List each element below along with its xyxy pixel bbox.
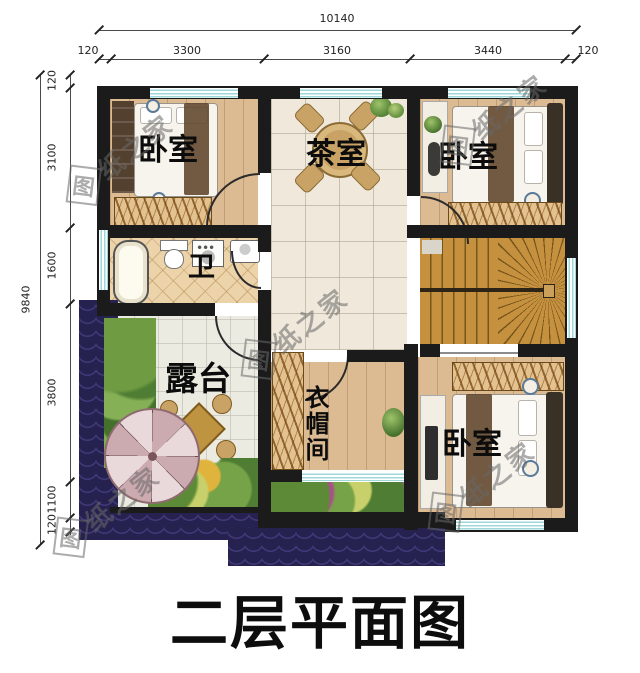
window bbox=[302, 472, 404, 481]
tv bbox=[425, 426, 438, 480]
toilet bbox=[164, 249, 184, 269]
door-opening bbox=[440, 352, 518, 354]
potted-plant bbox=[382, 408, 405, 437]
dim-top-seg: 120 bbox=[568, 45, 608, 56]
wall-segment bbox=[404, 344, 418, 530]
window bbox=[99, 230, 108, 290]
wall-segment bbox=[347, 350, 404, 362]
label-cloakroom: 衣帽间 bbox=[303, 385, 327, 463]
watermark-seal: 图 bbox=[66, 165, 102, 207]
dim-left-seg: 3100 bbox=[47, 138, 58, 178]
wall-segment bbox=[97, 225, 271, 238]
wall-segment bbox=[258, 238, 271, 252]
dim-left-seg: 1600 bbox=[47, 246, 58, 286]
window bbox=[150, 88, 238, 98]
wardrobe bbox=[452, 362, 564, 391]
dim-top-total: 10140 bbox=[307, 13, 367, 24]
stool bbox=[216, 440, 236, 460]
dim-line-top-segments bbox=[99, 59, 576, 60]
wall-segment bbox=[258, 99, 271, 173]
flower-bed bbox=[271, 482, 404, 512]
watermark-seal: 图 bbox=[53, 517, 89, 559]
wall-segment bbox=[97, 303, 215, 316]
stairs-handrail bbox=[420, 288, 546, 292]
roof-strip-bottom bbox=[228, 528, 445, 566]
pillow bbox=[524, 150, 543, 184]
window bbox=[300, 88, 382, 98]
lamp bbox=[522, 378, 539, 395]
wardrobe bbox=[272, 352, 304, 470]
window bbox=[456, 520, 544, 530]
label-terrace: 露台 bbox=[165, 362, 231, 395]
dim-top-seg: 3300 bbox=[167, 45, 207, 56]
dim-left-total: 9840 bbox=[21, 272, 32, 328]
wall-segment bbox=[407, 225, 578, 238]
label-tea-room: 茶室 bbox=[306, 140, 366, 170]
dim-left-seg: 120 bbox=[47, 61, 58, 101]
wardrobe bbox=[114, 197, 212, 227]
label-bathroom: 卫 bbox=[188, 254, 215, 281]
potted-plant bbox=[424, 116, 442, 133]
pillow bbox=[524, 112, 543, 146]
watermark-seal: 图 bbox=[440, 125, 476, 167]
window bbox=[567, 258, 576, 338]
wall-segment bbox=[407, 99, 420, 196]
wall-segment bbox=[258, 290, 271, 303]
dim-top-seg: 3440 bbox=[468, 45, 508, 56]
headboard bbox=[546, 392, 563, 508]
dim-left-seg: 3800 bbox=[47, 373, 58, 413]
headboard bbox=[547, 103, 563, 205]
dim-line-top-total bbox=[99, 30, 576, 31]
bathtub bbox=[113, 240, 149, 305]
stairs-newel-post bbox=[543, 284, 555, 298]
potted-plant bbox=[388, 103, 404, 118]
wall-segment bbox=[258, 303, 271, 316]
watermark-seal: 图 bbox=[428, 492, 464, 534]
pillow bbox=[518, 400, 537, 436]
dim-top-seg: 3160 bbox=[317, 45, 357, 56]
dim-line-left-segments bbox=[70, 75, 71, 535]
dim-top-seg: 120 bbox=[68, 45, 108, 56]
wall-segment bbox=[518, 344, 565, 357]
wall-segment bbox=[420, 344, 440, 357]
wall-segment bbox=[258, 470, 302, 482]
watermark-seal: 图 bbox=[241, 339, 277, 381]
dim-line-left-total bbox=[40, 75, 41, 545]
floor-plan-canvas: 10140 120 3300 3160 3440 120 9840 120 31… bbox=[0, 0, 640, 673]
wall-segment bbox=[258, 512, 445, 528]
page-title: 二层平面图 bbox=[0, 576, 640, 660]
